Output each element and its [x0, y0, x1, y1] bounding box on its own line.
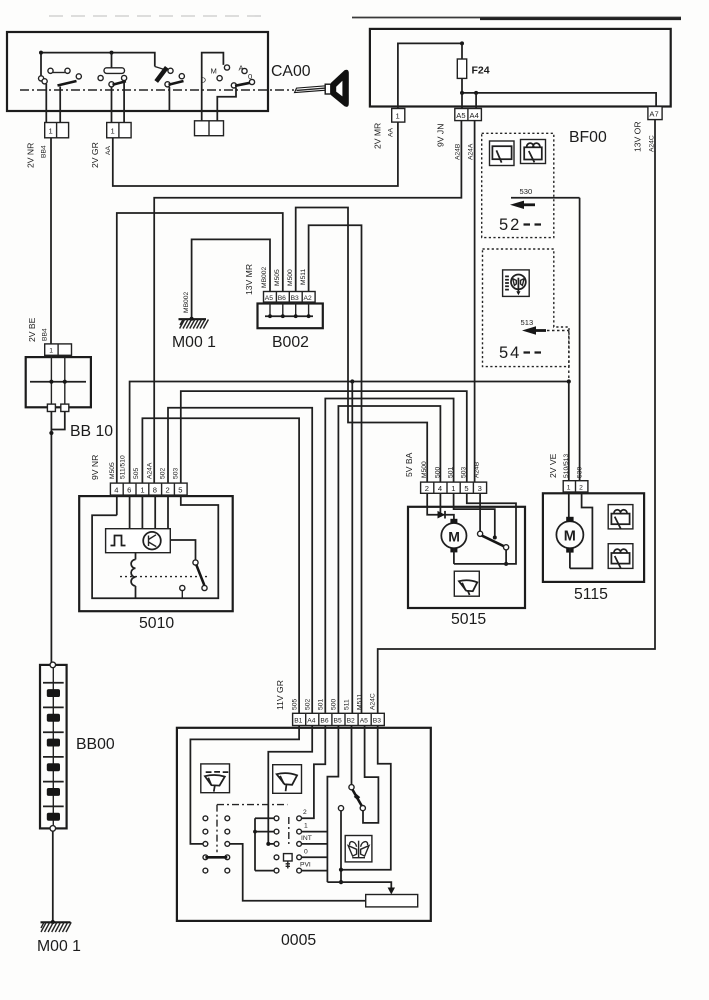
svg-text:1: 1 [49, 348, 53, 355]
svg-text:503: 503 [461, 467, 468, 478]
svg-text:2V GR: 2V GR [90, 142, 100, 168]
svg-text:A4: A4 [470, 111, 479, 120]
svg-text:2V NR: 2V NR [26, 143, 36, 168]
svg-text:4: 4 [438, 484, 442, 493]
svg-text:INT: INT [301, 835, 312, 842]
svg-text:A5: A5 [360, 718, 368, 725]
svg-text:500: 500 [331, 699, 338, 710]
svg-text:M: M [564, 529, 576, 545]
svg-text:2: 2 [425, 484, 429, 493]
svg-text:52: 52 [499, 216, 521, 234]
svg-text:PVI: PVI [300, 862, 311, 869]
svg-text:B2: B2 [347, 718, 355, 725]
svg-text:502: 502 [160, 468, 167, 479]
svg-text:1: 1 [567, 484, 571, 491]
svg-text:BB4: BB4 [41, 145, 48, 158]
svg-text:B6: B6 [278, 295, 286, 302]
svg-text:1: 1 [451, 484, 455, 493]
svg-text:1: 1 [111, 126, 115, 135]
svg-text:AA: AA [105, 146, 112, 155]
svg-text:B3: B3 [373, 718, 381, 725]
svg-text:501: 501 [448, 467, 455, 478]
svg-text:530: 530 [577, 467, 584, 478]
svg-text:M511: M511 [300, 268, 307, 285]
svg-text:BF00: BF00 [569, 129, 607, 146]
svg-text:M: M [448, 528, 460, 544]
svg-text:530: 530 [520, 187, 533, 196]
svg-text:B6: B6 [320, 718, 328, 725]
svg-text:4: 4 [114, 485, 118, 494]
svg-text:3: 3 [478, 484, 482, 493]
svg-text:2: 2 [166, 485, 170, 494]
svg-text:M511: M511 [357, 693, 364, 710]
svg-text:54: 54 [499, 344, 521, 362]
svg-text:B1: B1 [294, 718, 302, 725]
svg-text:505: 505 [133, 468, 140, 479]
svg-text:9V JN: 9V JN [436, 124, 446, 147]
svg-text:CA00: CA00 [271, 63, 311, 80]
svg-text:2: 2 [579, 484, 583, 491]
svg-text:511: 511 [344, 699, 351, 710]
svg-text:1: 1 [140, 485, 144, 494]
svg-text:M505: M505 [109, 462, 116, 479]
svg-text:2: 2 [303, 809, 307, 816]
svg-text:510/513: 510/513 [563, 454, 570, 478]
svg-text:AA: AA [388, 128, 395, 137]
svg-text:BB00: BB00 [76, 736, 115, 753]
svg-text:MB002: MB002 [183, 292, 190, 313]
svg-text:1: 1 [49, 126, 53, 135]
svg-text:A4: A4 [307, 718, 315, 725]
svg-text:M500: M500 [421, 461, 428, 478]
svg-text:0005: 0005 [281, 932, 316, 949]
svg-text:501: 501 [318, 699, 325, 710]
svg-text:F24: F24 [472, 65, 490, 77]
svg-text:A7: A7 [649, 109, 658, 118]
svg-text:A5: A5 [265, 295, 273, 302]
svg-text:505: 505 [292, 699, 299, 710]
svg-text:502: 502 [305, 699, 312, 710]
svg-text:A2: A2 [304, 295, 312, 302]
svg-text:M00 1: M00 1 [172, 334, 216, 351]
svg-text:500: 500 [435, 467, 442, 478]
svg-text:M500: M500 [287, 269, 294, 286]
svg-text:A24A: A24A [147, 462, 154, 479]
svg-text:11V GR: 11V GR [275, 680, 285, 710]
svg-text:B3: B3 [291, 295, 299, 302]
svg-text:5115: 5115 [574, 586, 608, 603]
svg-text:0: 0 [304, 849, 308, 856]
svg-text:9V NR: 9V NR [90, 455, 100, 480]
svg-text:D: D [201, 76, 207, 85]
svg-text:6: 6 [127, 485, 131, 494]
svg-text:BB4: BB4 [42, 328, 49, 341]
svg-text:1: 1 [396, 112, 400, 121]
svg-text:M: M [211, 67, 217, 76]
svg-text:503: 503 [173, 468, 180, 479]
svg-text:2V BE: 2V BE [27, 317, 37, 342]
svg-text:5: 5 [464, 484, 468, 493]
svg-text:5015: 5015 [451, 611, 486, 628]
svg-text:2V VE: 2V VE [548, 453, 558, 478]
svg-text:A24C: A24C [370, 693, 377, 710]
svg-text:8: 8 [153, 485, 157, 494]
svg-text:A24B: A24B [474, 461, 481, 478]
svg-text:BB 10: BB 10 [70, 423, 113, 440]
svg-text:13V MR: 13V MR [244, 264, 254, 295]
svg-text:5: 5 [178, 485, 182, 494]
svg-text:5010: 5010 [139, 615, 174, 632]
svg-text:M00 1: M00 1 [37, 938, 81, 955]
svg-text:MB002: MB002 [261, 267, 268, 288]
svg-text:M505: M505 [274, 269, 281, 286]
svg-text:5V BA: 5V BA [404, 452, 414, 477]
svg-text:513: 513 [521, 318, 534, 327]
svg-text:A24B: A24B [455, 143, 462, 160]
svg-text:2V MR: 2V MR [373, 123, 383, 149]
svg-text:B002: B002 [272, 334, 309, 351]
svg-text:B5: B5 [334, 718, 342, 725]
svg-text:1: 1 [304, 823, 308, 830]
svg-text:A24A: A24A [468, 143, 475, 160]
svg-text:511/510: 511/510 [120, 455, 127, 479]
svg-text:13V OR: 13V OR [633, 121, 643, 152]
svg-text:A5: A5 [456, 111, 465, 120]
